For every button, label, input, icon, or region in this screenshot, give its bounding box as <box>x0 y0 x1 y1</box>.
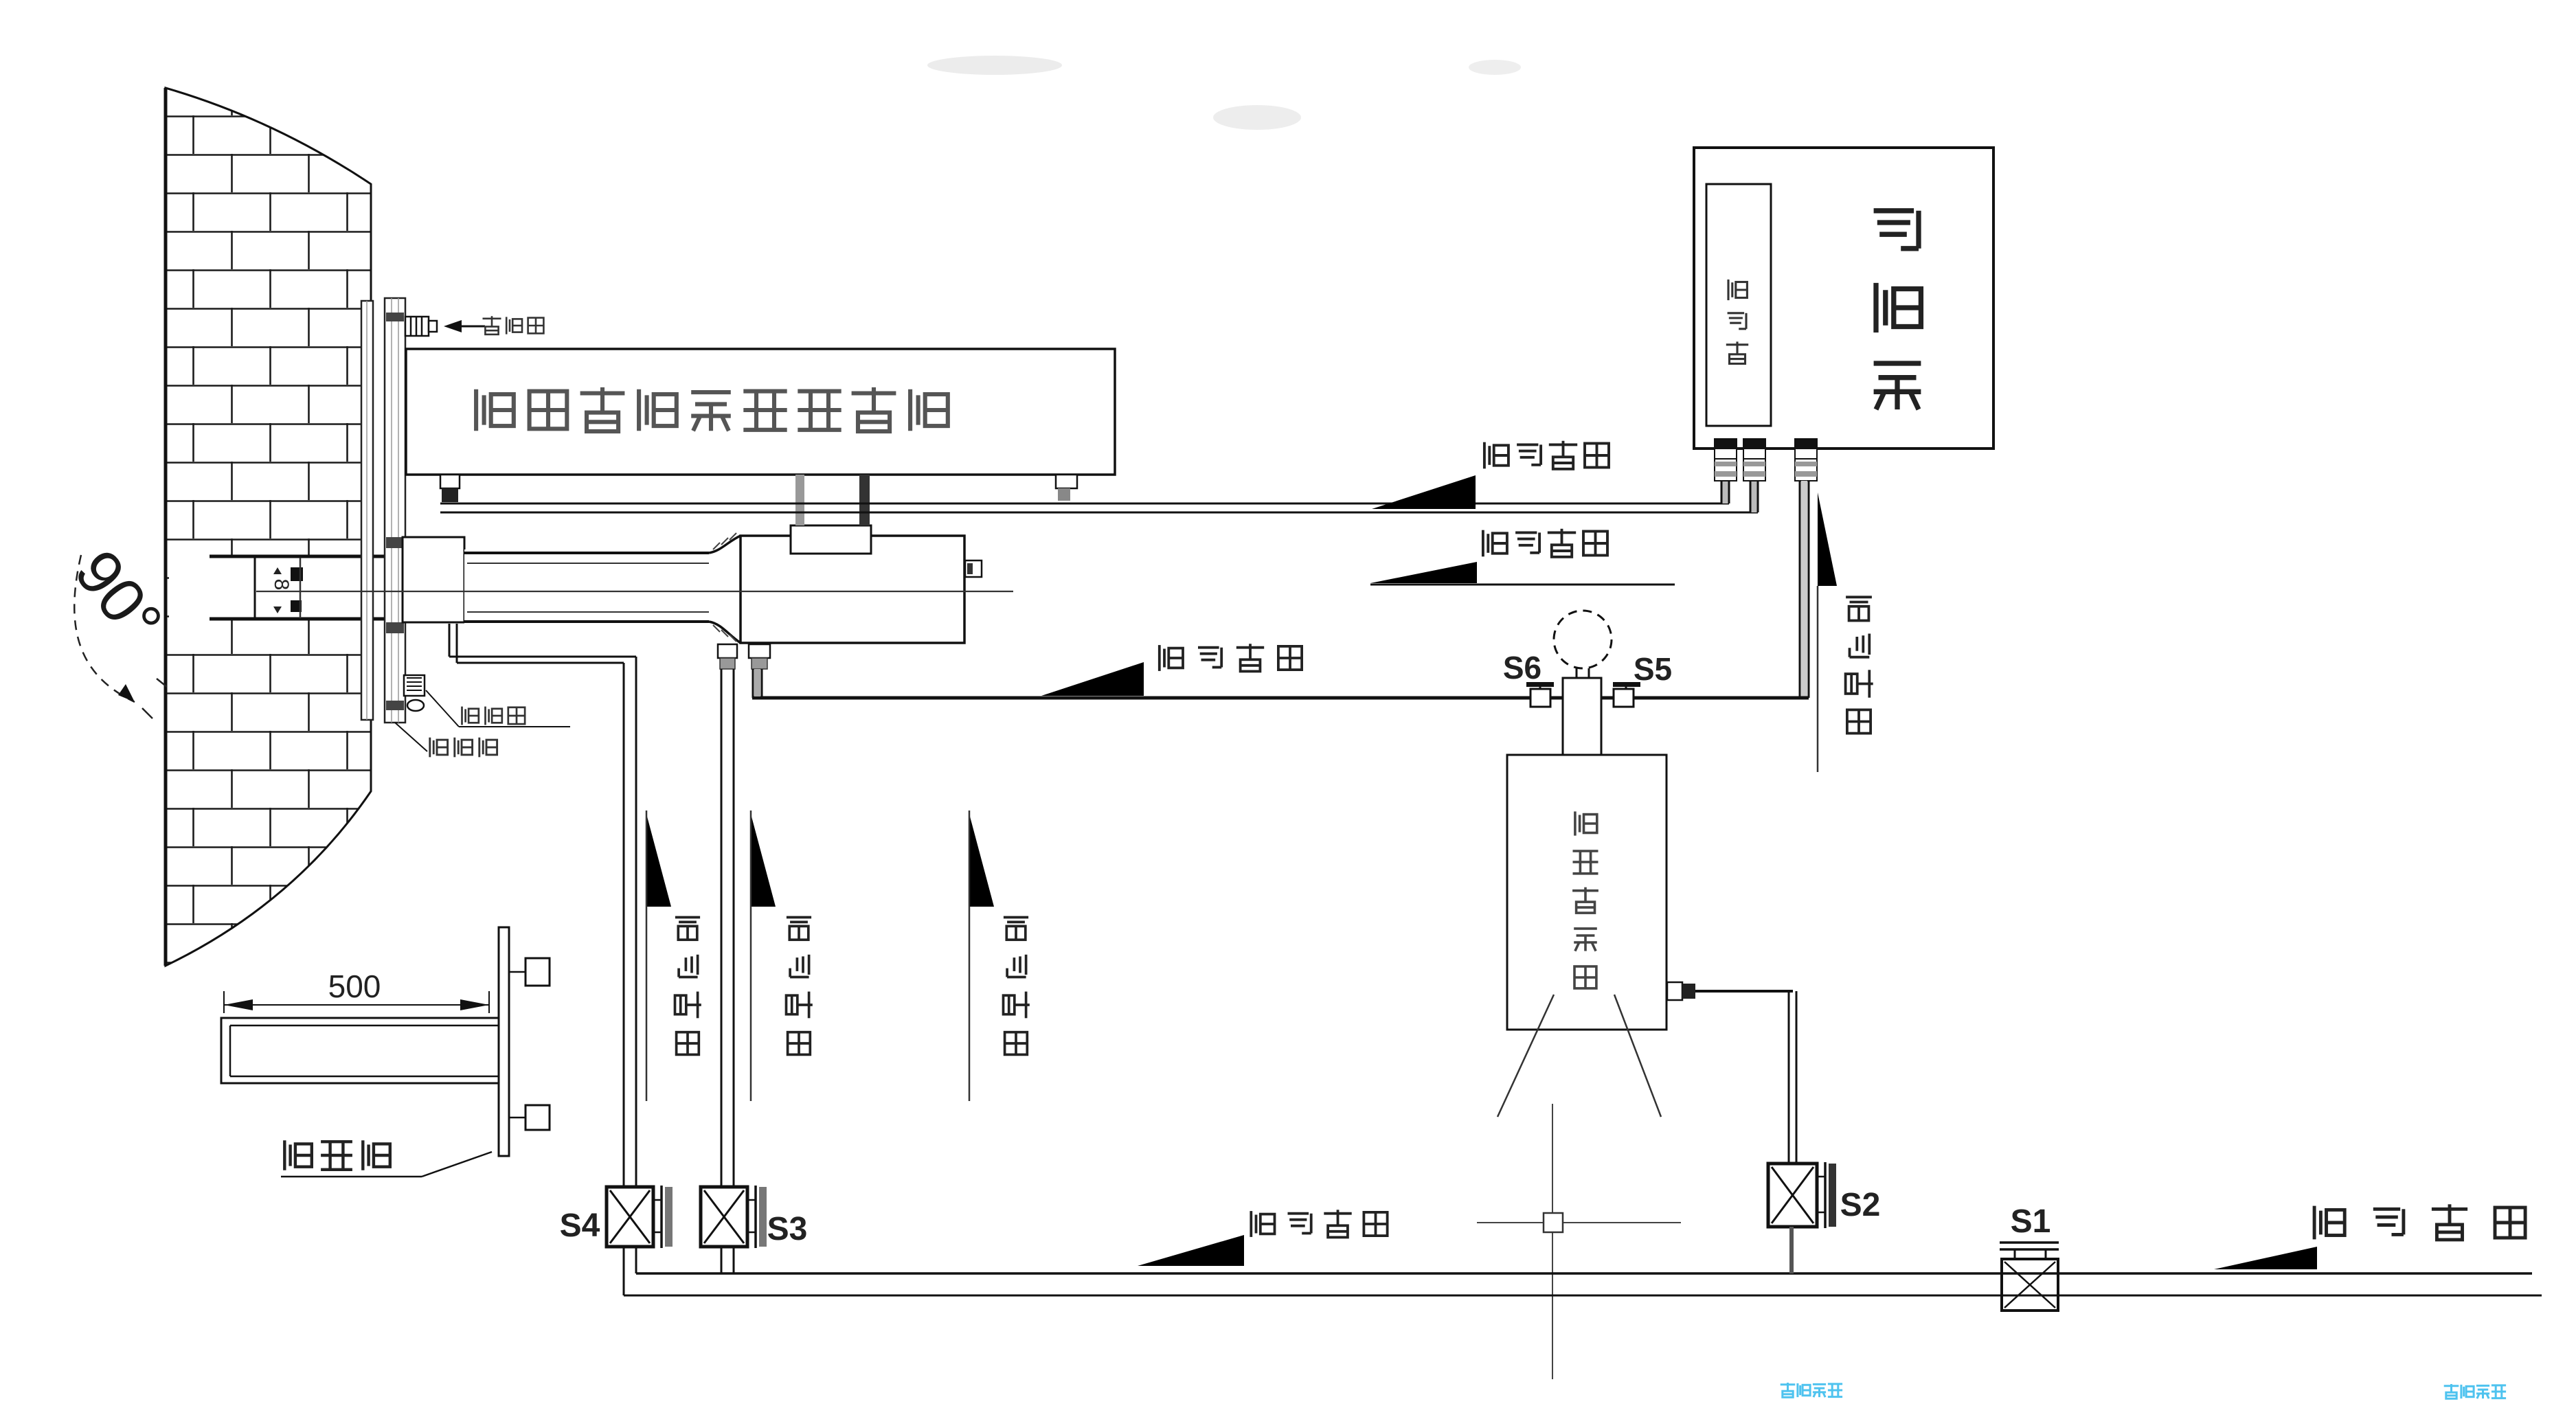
svg-text:S3: S3 <box>767 1211 808 1247</box>
svg-text:S2: S2 <box>1840 1187 1881 1223</box>
svg-text:8: 8 <box>270 579 293 591</box>
svg-text:S6: S6 <box>1503 650 1541 685</box>
svg-text:S1: S1 <box>2011 1203 2051 1240</box>
svg-text:S4: S4 <box>560 1208 600 1244</box>
svg-text:S5: S5 <box>1634 651 1672 687</box>
svg-text:500: 500 <box>328 968 381 1004</box>
